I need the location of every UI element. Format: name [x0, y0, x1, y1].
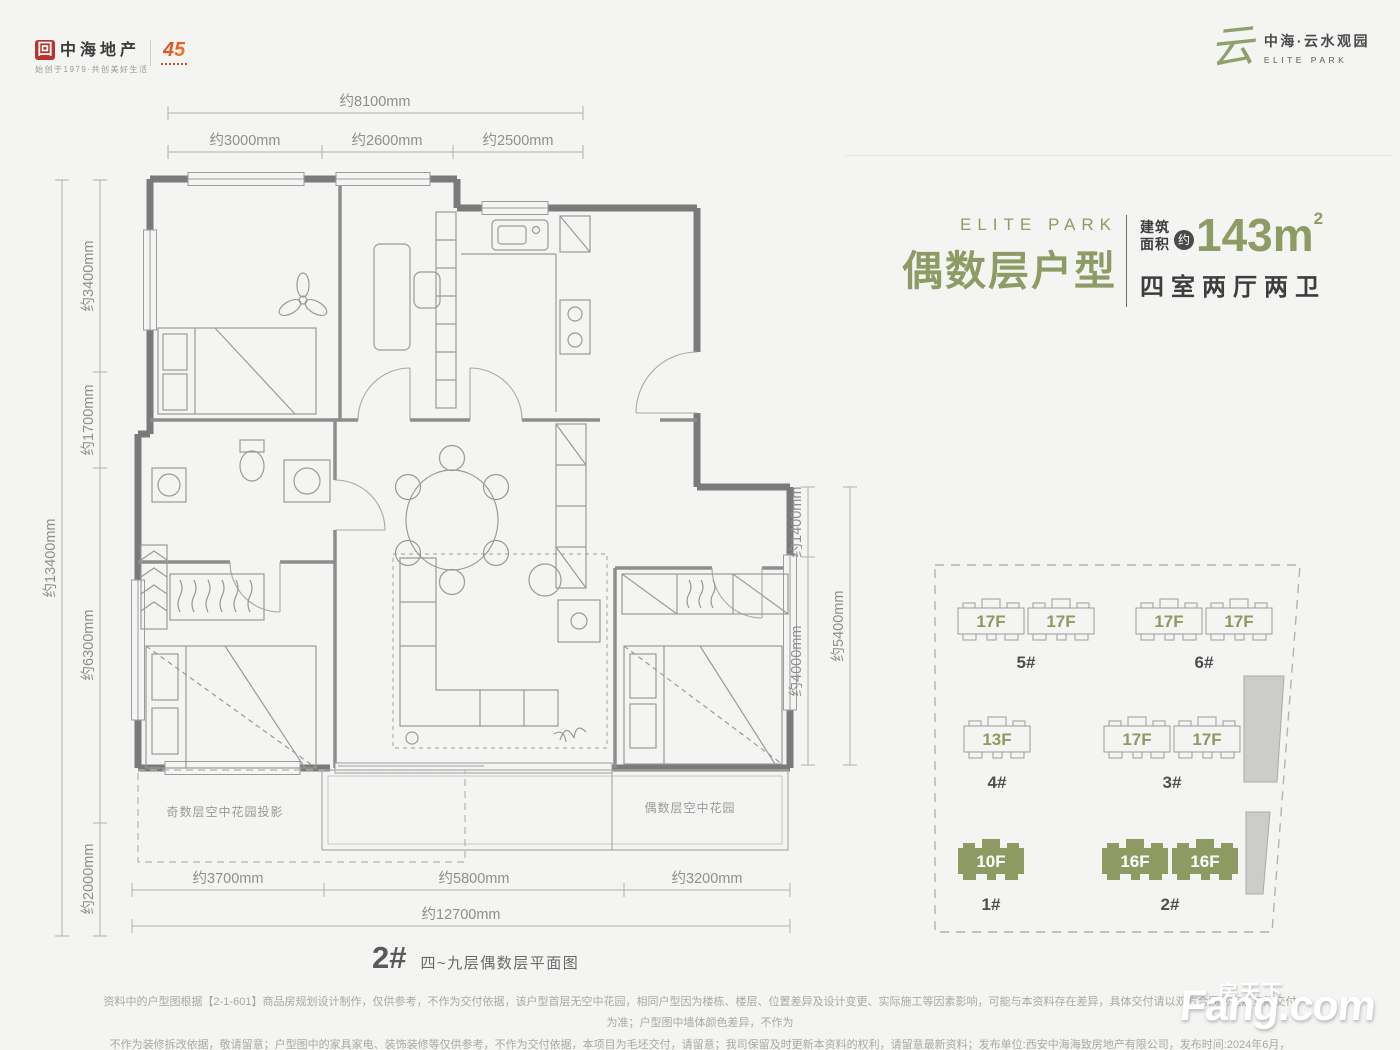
floors-2a: 16F [1120, 852, 1149, 871]
furniture [141, 212, 788, 768]
building-id-5: 5# [1017, 653, 1036, 672]
dim-right-1: 约1400mm [788, 487, 805, 558]
dim-left-2: 约1700mm [80, 385, 97, 456]
dim-left-4: 约2000mm [80, 844, 97, 915]
floors-1: 10F [976, 852, 1005, 871]
building-id-4: 4# [988, 773, 1007, 792]
dim-top-overall: 约8100mm [340, 93, 411, 110]
building-id-3: 3# [1163, 773, 1182, 792]
dim-top-2: 约2600mm [352, 132, 423, 149]
dim-bottom-overall: 约12700mm [422, 906, 501, 923]
door-swings [230, 352, 762, 618]
floor-plan: 奇数层空中花园投影 偶数层空中花园 约8100mm 约3000mm [42, 93, 857, 936]
plan-caption: 四~九层偶数层平面图 [420, 952, 579, 973]
dim-left-3: 约6300mm [80, 610, 97, 681]
floorplan-poster: 回 中海地产 始创于1979·共创美好生活 45 云 中海·云水观园 ELITE… [0, 0, 1400, 1050]
floors-6a: 17F [1154, 612, 1183, 631]
disclaimer-line-1: 资料中的户型图根据【2-1-601】商品房规划设计制作，仅供参考，不作为交付依据… [100, 992, 1300, 1035]
floors-4: 13F [982, 730, 1011, 749]
building-id-2: 2# [1161, 895, 1180, 914]
dim-top-1: 约3000mm [210, 132, 281, 149]
fang-watermark: 房天下 Fang.com [1178, 968, 1388, 1048]
disclaimer: 资料中的户型图根据【2-1-601】商品房规划设计制作，仅供参考，不作为交付依据… [100, 992, 1300, 1050]
dimension-labels: 约8100mm 约3000mm 约2600mm 约2500mm 约13400mm… [42, 93, 847, 923]
building-id-1: 1# [982, 895, 1001, 914]
dim-bottom-1: 约3700mm [193, 870, 264, 887]
plan-building-number: 2# [372, 940, 406, 976]
dim-left-1: 约3400mm [80, 241, 97, 312]
dim-top-3: 约2500mm [483, 132, 554, 149]
plan-caption-block: 2# 四~九层偶数层平面图 [372, 940, 579, 976]
dim-right-overall: 约5400mm [830, 591, 847, 662]
disclaimer-line-2: 不作为装修拆改依据，敬请留意；户型图中的家具家电、装饰装修等仅供参考，不作为交付… [100, 1035, 1300, 1050]
site-plan: 17F 17F 17F 17F 13F 17F 17F 10F 16F 16F … [935, 565, 1300, 932]
outer-walls [138, 179, 790, 768]
building-id-6: 6# [1195, 653, 1214, 672]
floors-5a: 17F [976, 612, 1005, 631]
floors-5b: 17F [1046, 612, 1075, 631]
floors-2b: 16F [1190, 852, 1219, 871]
watermark-en: Fang.com [1177, 982, 1377, 1031]
dim-bottom-2: 约5800mm [439, 870, 510, 887]
dim-bottom-3: 约3200mm [672, 870, 743, 887]
odd-garden-label: 奇数层空中花园投影 [166, 804, 283, 819]
dim-left-overall: 约13400mm [42, 519, 59, 598]
floors-3a: 17F [1122, 730, 1151, 749]
dim-right-2: 约4000mm [788, 626, 805, 697]
interior-walls [138, 179, 790, 768]
floors-3b: 17F [1192, 730, 1221, 749]
floors-6b: 17F [1224, 612, 1253, 631]
drawing-canvas: 奇数层空中花园投影 偶数层空中花园 约8100mm 约3000mm [0, 0, 1400, 1050]
even-garden-label: 偶数层空中花园 [644, 800, 735, 815]
